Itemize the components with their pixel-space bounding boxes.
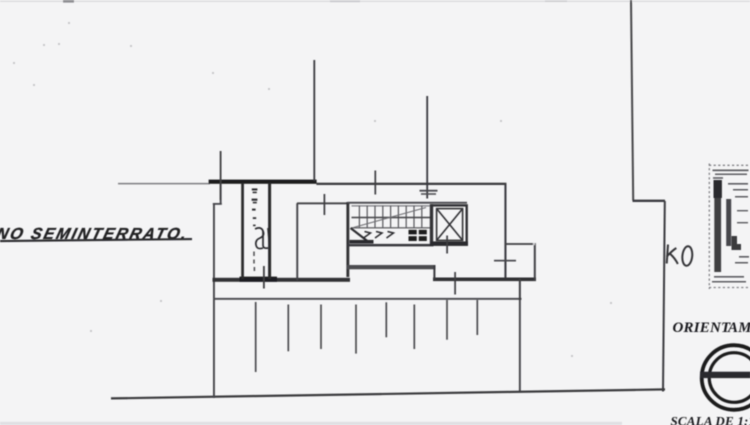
svg-text:AM: AM [727, 320, 750, 336]
svg-text:ORIENT: ORIENT [673, 320, 732, 336]
svg-text:SCALA DE 1:1: SCALA DE 1:1 [671, 414, 750, 425]
